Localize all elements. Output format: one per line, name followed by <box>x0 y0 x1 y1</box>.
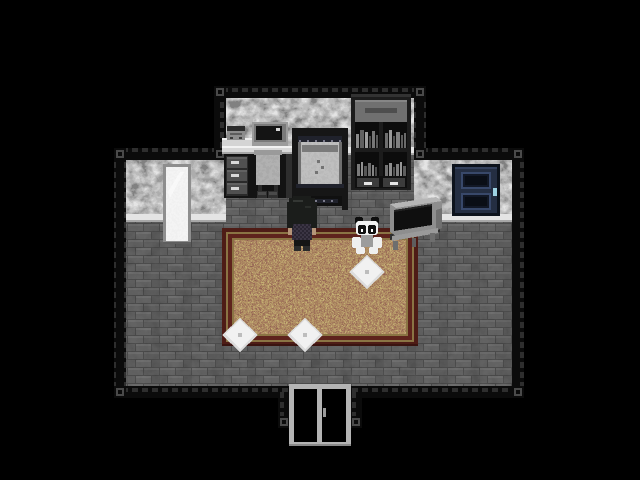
desk-drawers <box>226 156 248 196</box>
game-viewport[interactable] <box>0 0 640 480</box>
desk <box>222 122 292 198</box>
mirror <box>163 164 191 244</box>
rug <box>222 228 418 346</box>
doorway-handle <box>323 408 326 417</box>
door-handle <box>493 188 497 196</box>
game-scene <box>0 0 640 480</box>
game-console <box>227 126 245 140</box>
entry-doorway <box>278 384 362 446</box>
blue-door <box>452 164 500 216</box>
computer-monitor <box>252 122 288 146</box>
bookshelf <box>351 94 411 190</box>
